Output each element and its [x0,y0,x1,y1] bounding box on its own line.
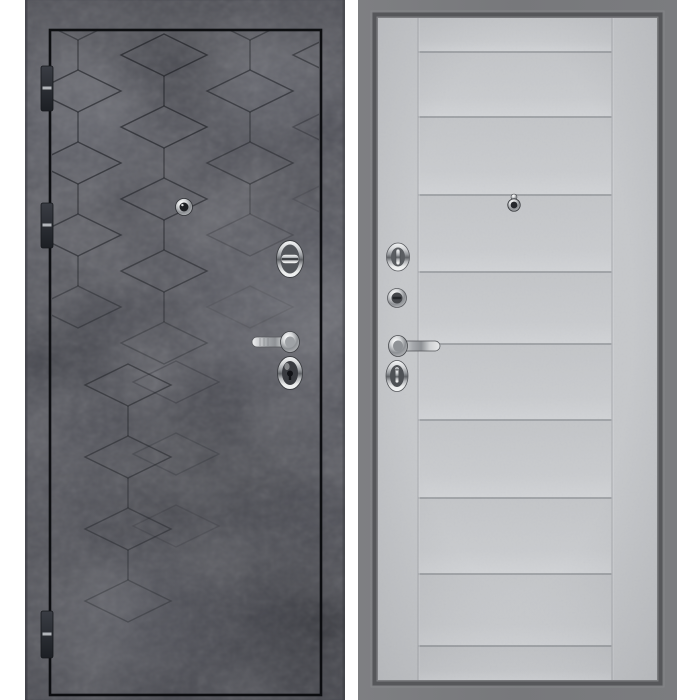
upper-thumbturn [387,243,410,271]
lower-thumbturn [386,361,408,392]
cylinder-knob [388,289,407,308]
peephole [176,199,193,216]
hinge-pin [43,633,52,636]
lower-cylinder-escutcheon [278,357,303,390]
upper-cylinder-escutcheon [277,241,304,278]
hinge-pin [43,224,52,227]
exterior-door-panel [25,0,345,700]
hinge-pin [43,87,52,90]
interior-door-panel [358,0,678,700]
door-product-photo [0,0,700,700]
lighting-shade [25,0,345,700]
